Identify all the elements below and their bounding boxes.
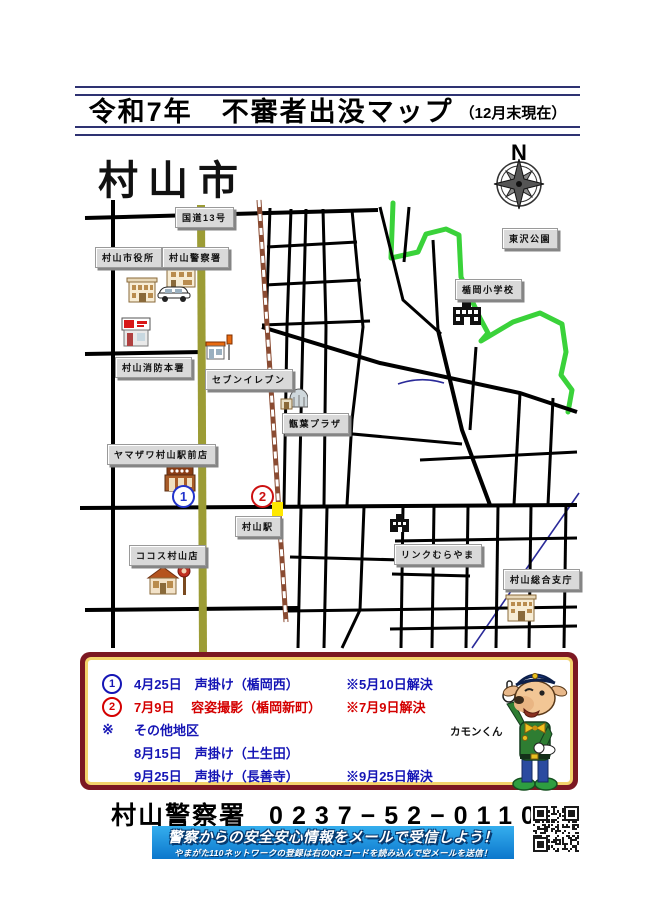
map-marker-1: 1 [172,485,195,508]
river-line [398,380,444,384]
incident-marker-other: ※ [102,721,114,738]
incident-marker-1: 1 [102,674,122,694]
map-label-fire-station: 村山消防本署 [115,357,192,378]
qr-code-modules [533,806,579,852]
map-label-police-station: 村山警察署 [162,247,229,268]
incident-note-5: ※9月25日解決 [346,766,433,785]
map-label-yamazawa: ヤマザワ村山駅前店 [107,444,216,465]
map-label-sogo-shicho: 村山総合支庁 [503,569,580,590]
banner-headline: 警察からの安全安心情報をメールで受信しよう！ [168,826,498,847]
map-label-tateoka-elem: 楯岡小学校 [455,279,522,300]
incident-text-1: 4月25日 声掛け（楯岡西） [134,674,346,693]
compass-icon [494,159,545,210]
city-hall-icon [126,274,158,304]
map-label-city-hall: 村山市役所 [95,247,162,268]
incident-note-1: ※5月10日解決 [346,674,433,693]
tateoka-school-icon [452,300,482,326]
map-city-name: 村山市 [98,148,248,206]
email-info-banner: 警察からの安全安心情報をメールで受信しよう！ やまがた110ネットワークの登録は… [152,826,514,859]
incident-marker-2: 2 [102,697,122,717]
compass-n-label: N [511,140,527,165]
map-label-cocos: ココス村山店 [129,545,206,566]
sogo-shicho-icon [504,592,538,622]
station-crossing-marker [272,502,283,516]
map-label-link-murayama: リンクむらやま [394,544,482,565]
incident-box-inner: 1 4月25日 声掛け（楯岡西） ※5月10日解決 2 7月9日 容姿撮影（楯岡… [85,657,573,785]
incident-note-2: ※7月9日解決 [346,697,425,716]
map-label-higashizawa-park: 東沢公園 [502,228,558,249]
police-station-icon [157,268,199,302]
incident-text-3: その他地区 [134,720,346,739]
incident-box: 1 4月25日 声掛け（楯岡西） ※5月10日解決 2 7月9日 容姿撮影（楯岡… [80,652,578,790]
map-marker-2: 2 [251,485,274,508]
incident-text-2: 7月9日 容姿撮影（楯岡新町） [134,697,346,716]
police-mascot-icon [494,664,572,792]
route13-road [201,205,203,655]
cocos-restaurant-icon [146,564,194,596]
qr-code [531,804,581,854]
incident-text-5: 9月25日 声掛け（長善寺） [134,766,346,785]
seven-eleven-icon [205,334,233,362]
fire-station-icon [121,317,151,349]
map-label-route-13: 国道13号 [175,207,234,228]
banner-subline: やまがた110ネットワークの登録は右のQRコードを読み込んで空メールを送信！ [174,847,492,859]
map-label-shoyo-plaza: 甑葉プラザ [282,413,349,434]
incident-text-4: 8月15日 声掛け（土生田） [134,743,346,762]
link-murayama-icon [390,514,410,532]
poster-page: 令和7年 不審者出没マップ （12月末現在） [0,0,650,918]
map-label-seven-eleven: セブンイレブン [205,369,293,390]
map-label-murayama-station: 村山駅 [235,516,281,537]
